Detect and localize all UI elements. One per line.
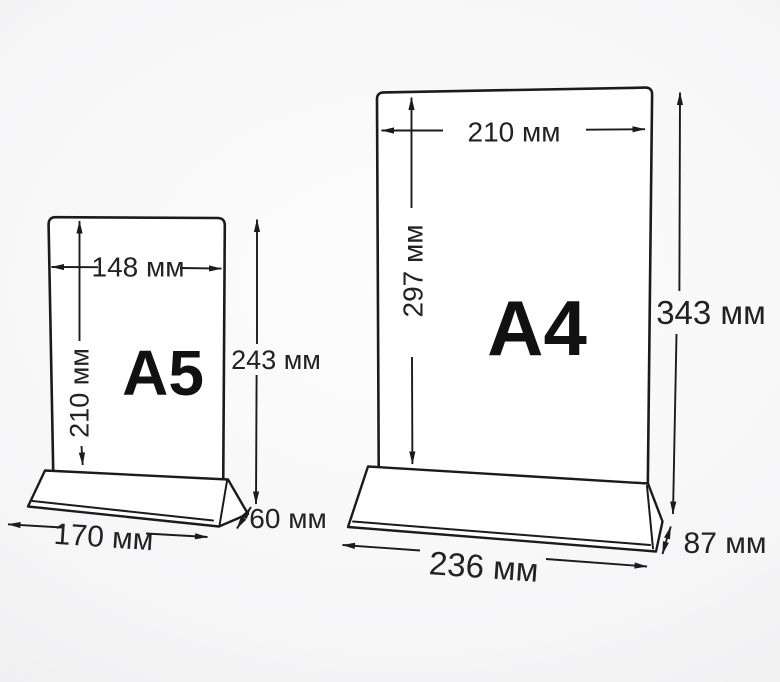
a4-base-depth-arrow-upper	[667, 527, 671, 541]
a4-total-height-label: 343 мм	[656, 294, 766, 331]
a4-total-height-arrow-down	[673, 334, 677, 514]
a5-total-height-arrow-down	[256, 375, 257, 504]
a4-base-depth-arrow-lower	[663, 540, 667, 554]
stand-dimensions-diagram: 210 мм 148 мм A5 243 мм 170 мм 60 мм 297…	[0, 0, 780, 682]
a5-paper-width-label: 148 мм	[92, 252, 185, 283]
a5-size-label: A5	[122, 337, 204, 409]
a5-paper-height-label: 210 мм	[65, 348, 95, 438]
a5-height-arrow-down	[82, 446, 83, 465]
a5-base-width-arrow-right	[146, 534, 208, 538]
a4-width-arrow-right	[586, 129, 645, 130]
diagram-canvas: 210 мм 148 мм A5 243 мм 170 мм 60 мм 297…	[0, 0, 780, 682]
a5-total-height-label: 243 мм	[231, 345, 321, 375]
a4-size-label: A4	[487, 284, 587, 372]
a4-paper-height-label: 297 мм	[398, 225, 429, 318]
a4-total-height-arrow-up	[679, 93, 680, 292]
a4-base-width-label: 236 мм	[428, 544, 540, 589]
a4-stand: 297 мм 210 мм A4 343 мм 236 мм 87 мм	[343, 88, 767, 589]
a4-base-depth-label: 87 мм	[684, 527, 767, 560]
a4-paper-width-label: 210 мм	[468, 117, 561, 148]
a5-stand: 210 мм 148 мм A5 243 мм 170 мм 60 мм	[8, 217, 327, 557]
a4-base-width-arrow-right	[546, 559, 647, 567]
a4-base-width-arrow-left	[343, 545, 421, 551]
a5-width-arrow-right	[180, 268, 222, 269]
a5-base-width-label: 170 мм	[53, 518, 155, 558]
a5-base-depth-label: 60 мм	[249, 503, 326, 534]
